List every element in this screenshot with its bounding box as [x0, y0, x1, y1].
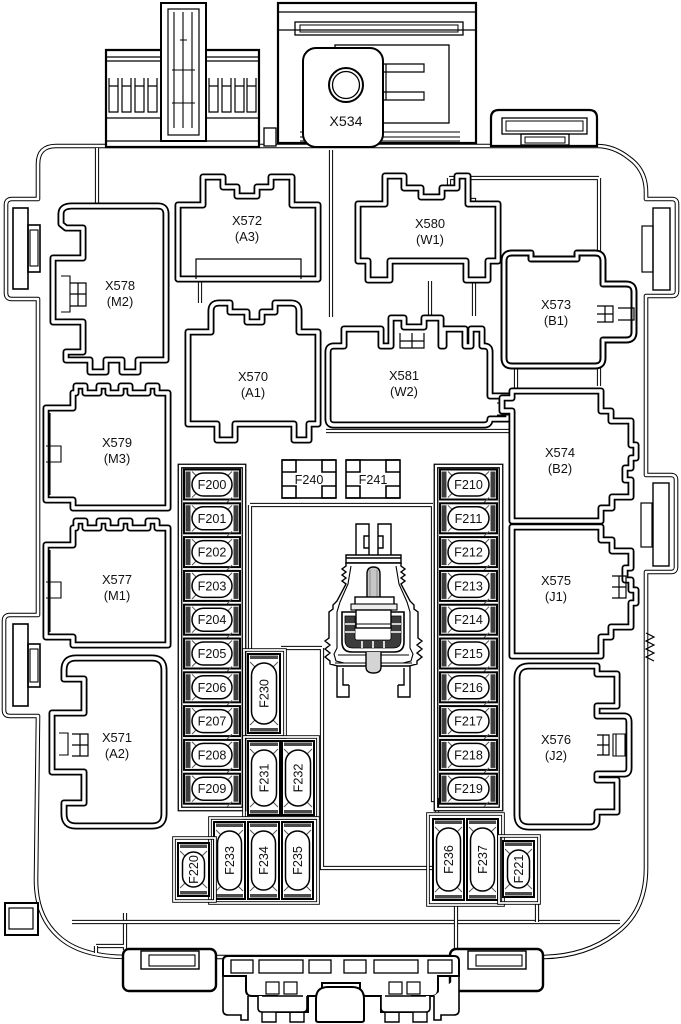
svg-text:F200: F200 [198, 478, 227, 492]
svg-text:F219: F219 [454, 782, 483, 796]
svg-text:F233: F233 [223, 846, 237, 875]
svg-text:X580: X580 [415, 216, 445, 231]
svg-text:F240: F240 [295, 473, 324, 487]
svg-text:F211: F211 [455, 512, 483, 526]
svg-text:F217: F217 [454, 715, 483, 729]
svg-text:F204: F204 [198, 613, 227, 627]
svg-text:X570: X570 [238, 369, 268, 384]
svg-text:X572: X572 [232, 213, 262, 228]
svg-text:(A2): (A2) [105, 746, 129, 761]
svg-text:(M1): (M1) [104, 588, 131, 603]
svg-text:X578: X578 [105, 278, 135, 293]
svg-text:(A3): (A3) [235, 229, 259, 244]
svg-text:(W1): (W1) [416, 232, 444, 247]
svg-text:F208: F208 [198, 748, 227, 762]
svg-text:F231: F231 [258, 764, 272, 793]
svg-text:X577: X577 [102, 572, 132, 587]
svg-text:F214: F214 [454, 613, 483, 627]
svg-text:(B1): (B1) [544, 313, 568, 328]
svg-text:(W2): (W2) [390, 384, 418, 399]
svg-text:(J1): (J1) [545, 589, 567, 604]
svg-text:F232: F232 [292, 764, 306, 793]
svg-text:F209: F209 [198, 782, 227, 796]
svg-text:F220: F220 [187, 855, 201, 884]
svg-text:X571: X571 [102, 730, 132, 745]
svg-text:X534: X534 [329, 114, 362, 130]
svg-text:F221: F221 [512, 855, 526, 884]
svg-text:F212: F212 [454, 546, 483, 560]
svg-text:(M2): (M2) [107, 294, 134, 309]
svg-text:F202: F202 [198, 546, 227, 560]
svg-text:F237: F237 [476, 845, 490, 874]
svg-text:(J2): (J2) [545, 748, 567, 763]
svg-text:F216: F216 [454, 681, 483, 695]
svg-text:F236: F236 [442, 845, 456, 874]
svg-text:F206: F206 [198, 681, 227, 695]
svg-text:F205: F205 [198, 647, 227, 661]
svg-text:F218: F218 [454, 748, 483, 762]
svg-text:F234: F234 [257, 846, 271, 875]
svg-text:X576: X576 [541, 732, 571, 747]
svg-text:X574: X574 [545, 445, 575, 460]
svg-text:X575: X575 [541, 573, 571, 588]
svg-text:(B2): (B2) [548, 461, 572, 476]
svg-text:F215: F215 [454, 647, 483, 661]
svg-text:(M3): (M3) [104, 451, 131, 466]
svg-text:X573: X573 [541, 297, 571, 312]
svg-text:X579: X579 [102, 435, 132, 450]
svg-text:F203: F203 [198, 579, 227, 593]
svg-text:F241: F241 [359, 473, 388, 487]
svg-text:F207: F207 [198, 715, 227, 729]
svg-text:F201: F201 [198, 512, 227, 526]
svg-text:(A1): (A1) [241, 385, 265, 400]
svg-text:F235: F235 [291, 846, 305, 875]
svg-text:F230: F230 [258, 679, 272, 708]
svg-text:F213: F213 [454, 579, 483, 593]
svg-text:X581: X581 [389, 368, 419, 383]
svg-text:F210: F210 [454, 478, 483, 492]
